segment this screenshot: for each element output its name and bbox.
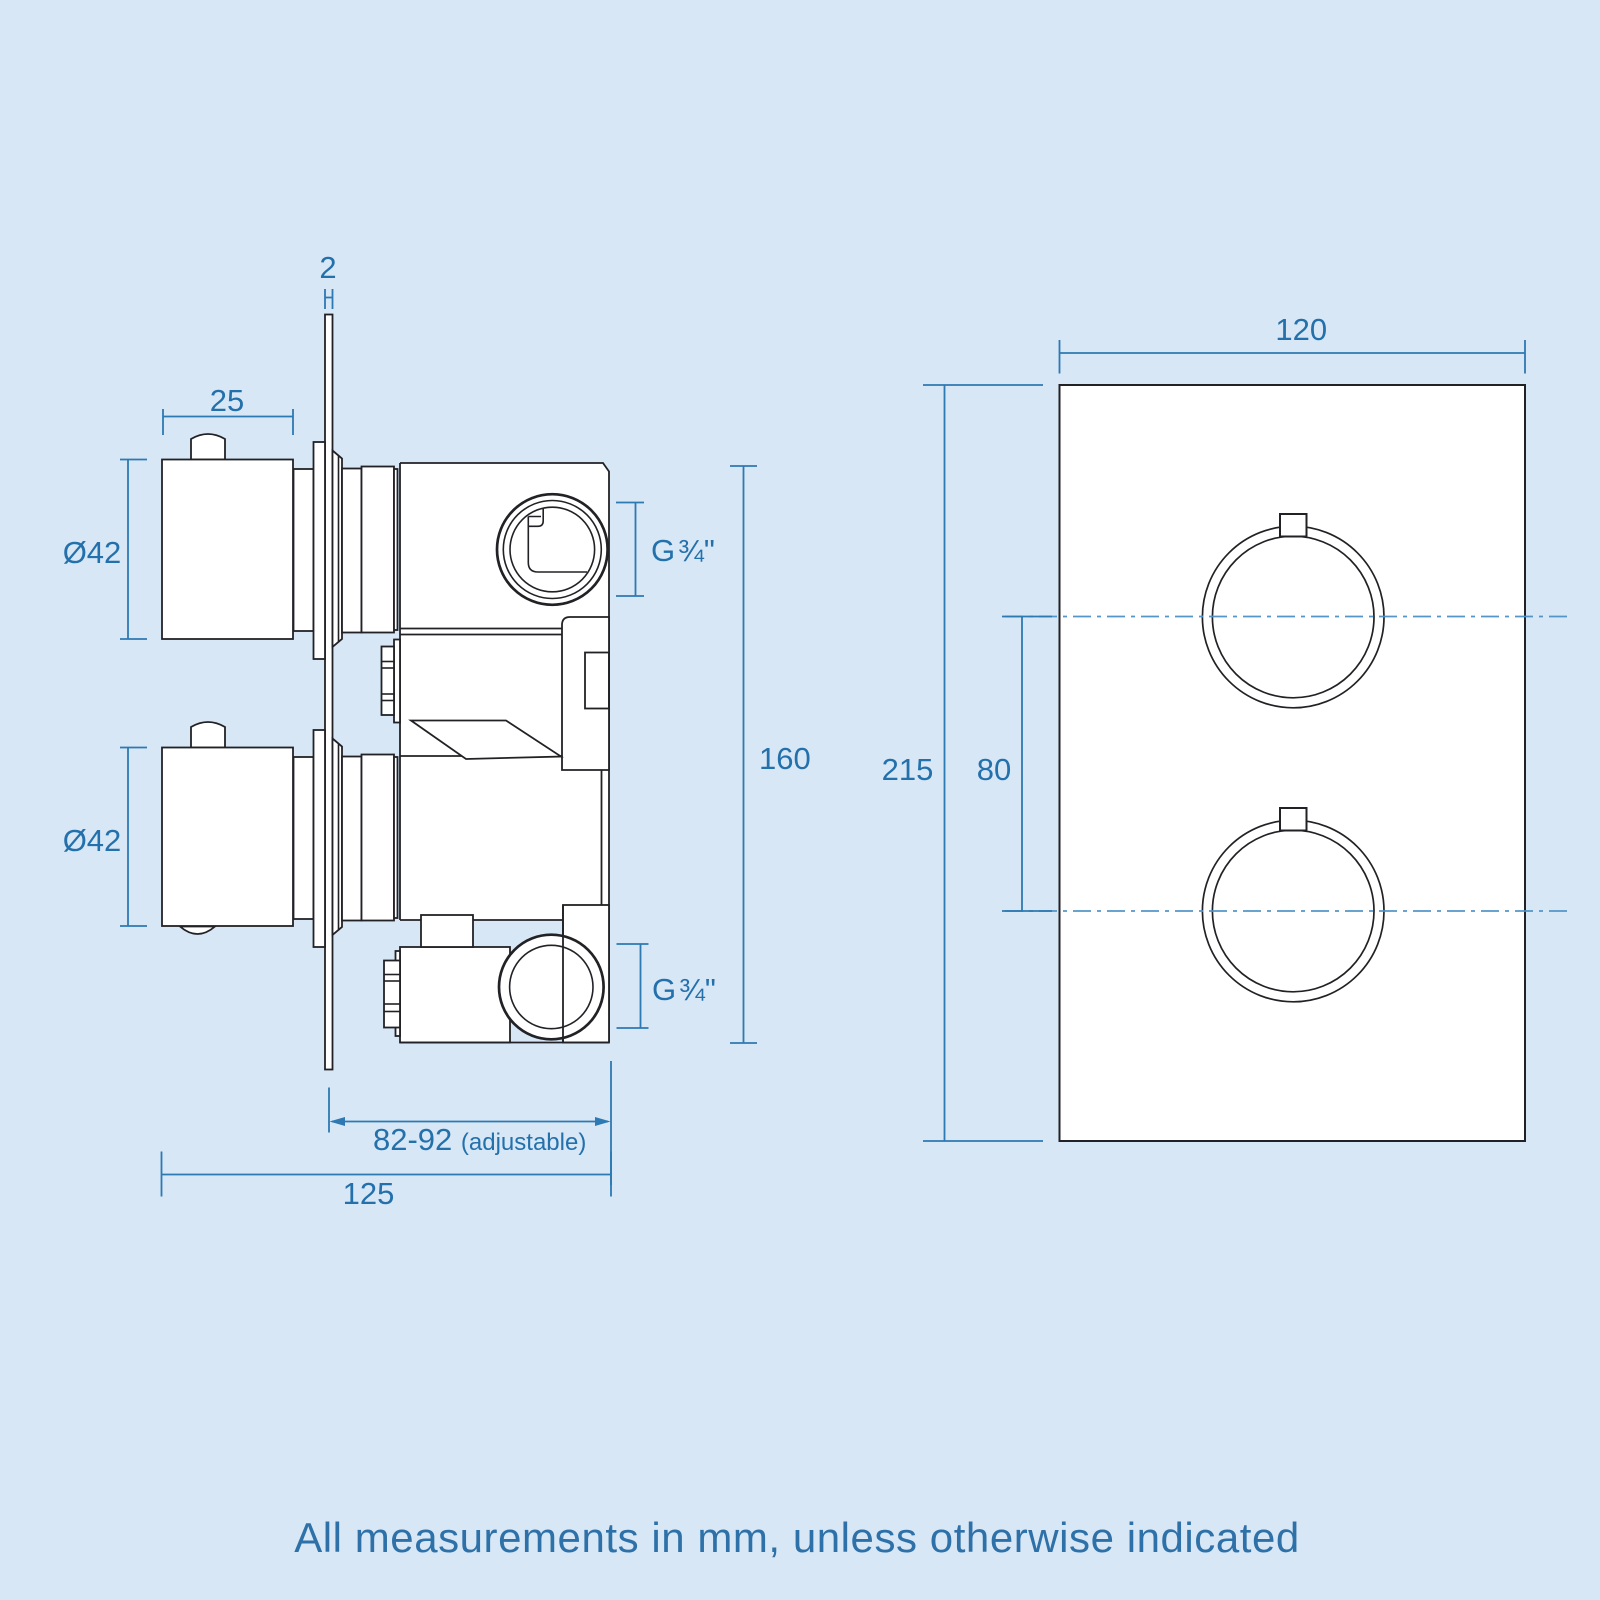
svg-text:80: 80 (977, 752, 1011, 787)
svg-text:25: 25 (210, 383, 244, 418)
svg-text:G: G (651, 533, 675, 568)
svg-text:2: 2 (319, 250, 336, 285)
svg-text:120: 120 (1275, 312, 1327, 347)
svg-text:¾": ¾" (678, 533, 715, 568)
svg-text:¾": ¾" (679, 972, 716, 1007)
svg-text:Ø42: Ø42 (63, 535, 122, 570)
svg-text:All measurements in mm, unless: All measurements in mm, unless otherwise… (294, 1514, 1300, 1561)
svg-text:Ø42: Ø42 (63, 823, 122, 858)
svg-text:125: 125 (343, 1176, 395, 1211)
svg-text:215: 215 (882, 752, 934, 787)
svg-text:160: 160 (759, 741, 811, 776)
svg-text:G: G (652, 972, 676, 1007)
